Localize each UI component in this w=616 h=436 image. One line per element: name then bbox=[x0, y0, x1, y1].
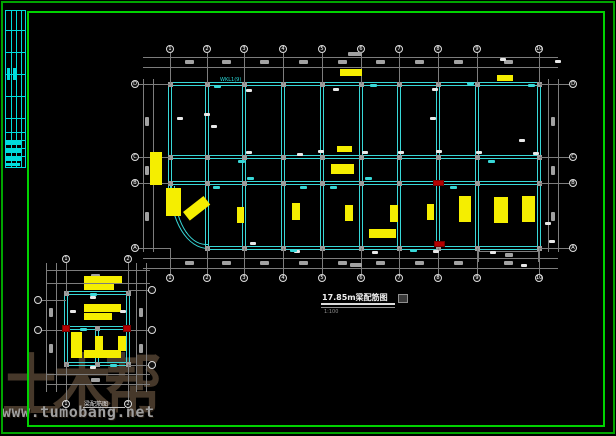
title-block-text bbox=[6, 141, 22, 145]
title-block-text bbox=[6, 157, 22, 161]
title-block-line bbox=[5, 30, 26, 31]
title-block-text bbox=[6, 149, 22, 153]
title-block-line bbox=[5, 132, 26, 133]
title-block-text bbox=[13, 68, 16, 80]
title-underline-thick bbox=[321, 303, 395, 305]
title-block-text bbox=[7, 68, 10, 80]
cad-viewport: 土木帮 www.tumobang.net 1122334455667788991… bbox=[0, 0, 616, 436]
main-plan-title: 17.85m梁配筋图 bbox=[322, 292, 388, 303]
title-underline-thin bbox=[321, 307, 395, 308]
scale-stamp bbox=[398, 294, 408, 303]
main-plan-scale-note: 1:100 bbox=[324, 309, 338, 315]
small-title-underline bbox=[83, 407, 125, 408]
title-block-line bbox=[5, 118, 26, 119]
title-block-line bbox=[5, 96, 26, 97]
beam-label: WKL1(9) bbox=[220, 77, 241, 83]
title-block-text bbox=[6, 163, 20, 166]
title-block bbox=[0, 0, 616, 436]
title-block-line bbox=[5, 52, 26, 53]
